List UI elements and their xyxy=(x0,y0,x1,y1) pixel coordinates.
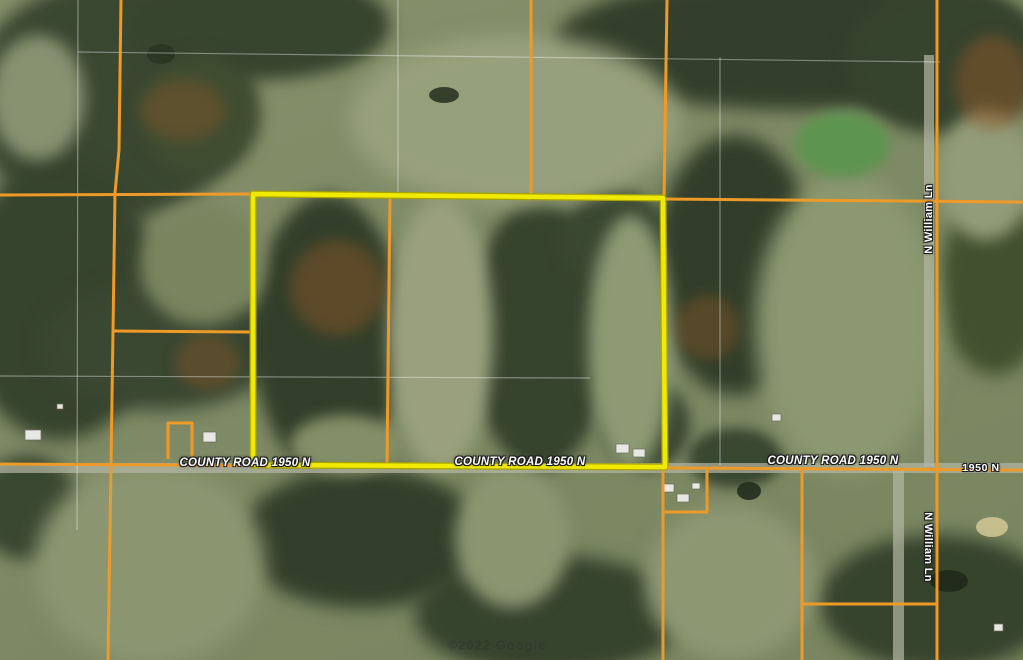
william-ln-surface-north xyxy=(924,55,934,467)
pond xyxy=(737,482,761,500)
imagery-features xyxy=(25,44,1008,631)
section-lines xyxy=(0,0,940,530)
road-surfaces xyxy=(0,55,1023,660)
pond xyxy=(147,44,175,64)
map-viewport[interactable]: COUNTY ROAD 1950 NCOUNTY ROAD 1950 NCOUN… xyxy=(0,0,1023,660)
pond xyxy=(429,87,459,103)
section-line-h-center xyxy=(0,376,590,378)
small-parcel-west xyxy=(168,423,192,459)
building xyxy=(633,449,645,457)
parcel-lines xyxy=(0,0,1023,660)
section-line-h-north xyxy=(78,52,940,62)
building xyxy=(692,483,700,489)
building xyxy=(994,624,1003,631)
building xyxy=(25,430,41,440)
highlighted-parcel-edge xyxy=(253,194,665,467)
west-parcel-spur xyxy=(114,331,250,332)
highlighted-parcel-boundary[interactable] xyxy=(253,194,665,467)
interior-line xyxy=(387,196,390,465)
building xyxy=(677,494,689,502)
building xyxy=(772,414,781,421)
north-line-east xyxy=(663,199,1023,202)
william-ln-surface-south xyxy=(893,470,904,660)
building xyxy=(663,484,674,492)
building xyxy=(57,404,63,409)
building xyxy=(616,444,629,453)
highlighted-parcel[interactable] xyxy=(253,194,665,467)
section-line-v-west xyxy=(77,0,78,530)
pond xyxy=(976,517,1008,537)
building xyxy=(203,432,216,442)
northeast-line xyxy=(664,0,667,198)
north-line-west xyxy=(0,194,253,195)
parcel-overlay xyxy=(0,0,1023,660)
